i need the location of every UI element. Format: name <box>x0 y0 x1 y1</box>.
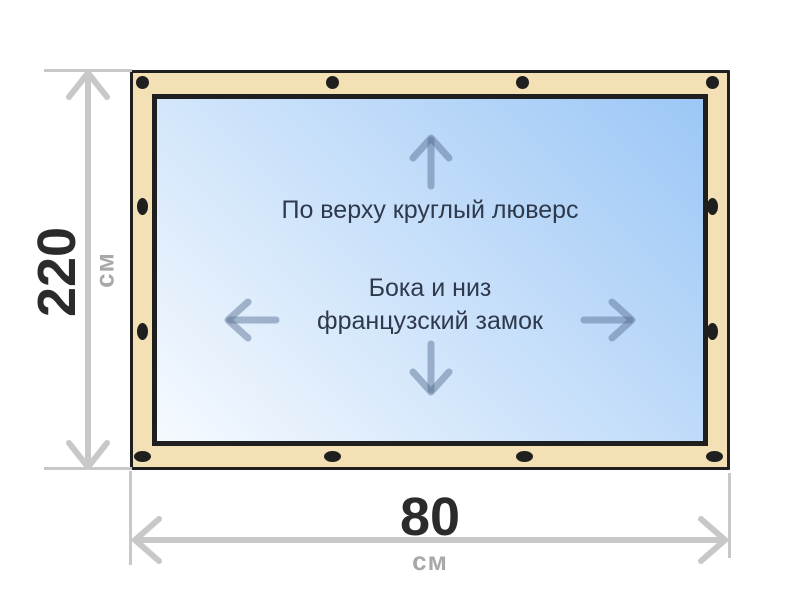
grommet-top-4 <box>706 76 719 89</box>
fastener-bottom-1 <box>134 451 151 462</box>
fastener-bottom-2 <box>324 451 341 462</box>
grommet-top-1 <box>136 76 149 89</box>
fastener-bottom-3 <box>516 451 533 462</box>
note-top-edge: По верху круглый люверс <box>157 196 703 225</box>
width-unit: см <box>130 546 730 577</box>
arrow-up-icon <box>405 130 457 192</box>
note-sides-line1: Бока и низ <box>157 272 703 305</box>
fastener-right-2 <box>707 323 718 340</box>
note-sides: Бока и низ французский замок <box>157 272 703 338</box>
grommet-top-2 <box>326 76 339 89</box>
height-value: 220 <box>26 227 88 317</box>
arrow-down-icon <box>405 338 457 400</box>
fastener-bottom-4 <box>706 451 723 462</box>
grommet-top-3 <box>516 76 529 89</box>
width-value: 80 <box>130 486 730 548</box>
fastener-left-2 <box>137 323 148 340</box>
fastener-right-1 <box>707 198 718 215</box>
fastener-left-1 <box>137 198 148 215</box>
height-unit: см <box>90 252 121 288</box>
curtain-diagram: По верху круглый люверс Бока и низ франц… <box>0 0 800 600</box>
note-sides-line2: французский замок <box>157 305 703 338</box>
